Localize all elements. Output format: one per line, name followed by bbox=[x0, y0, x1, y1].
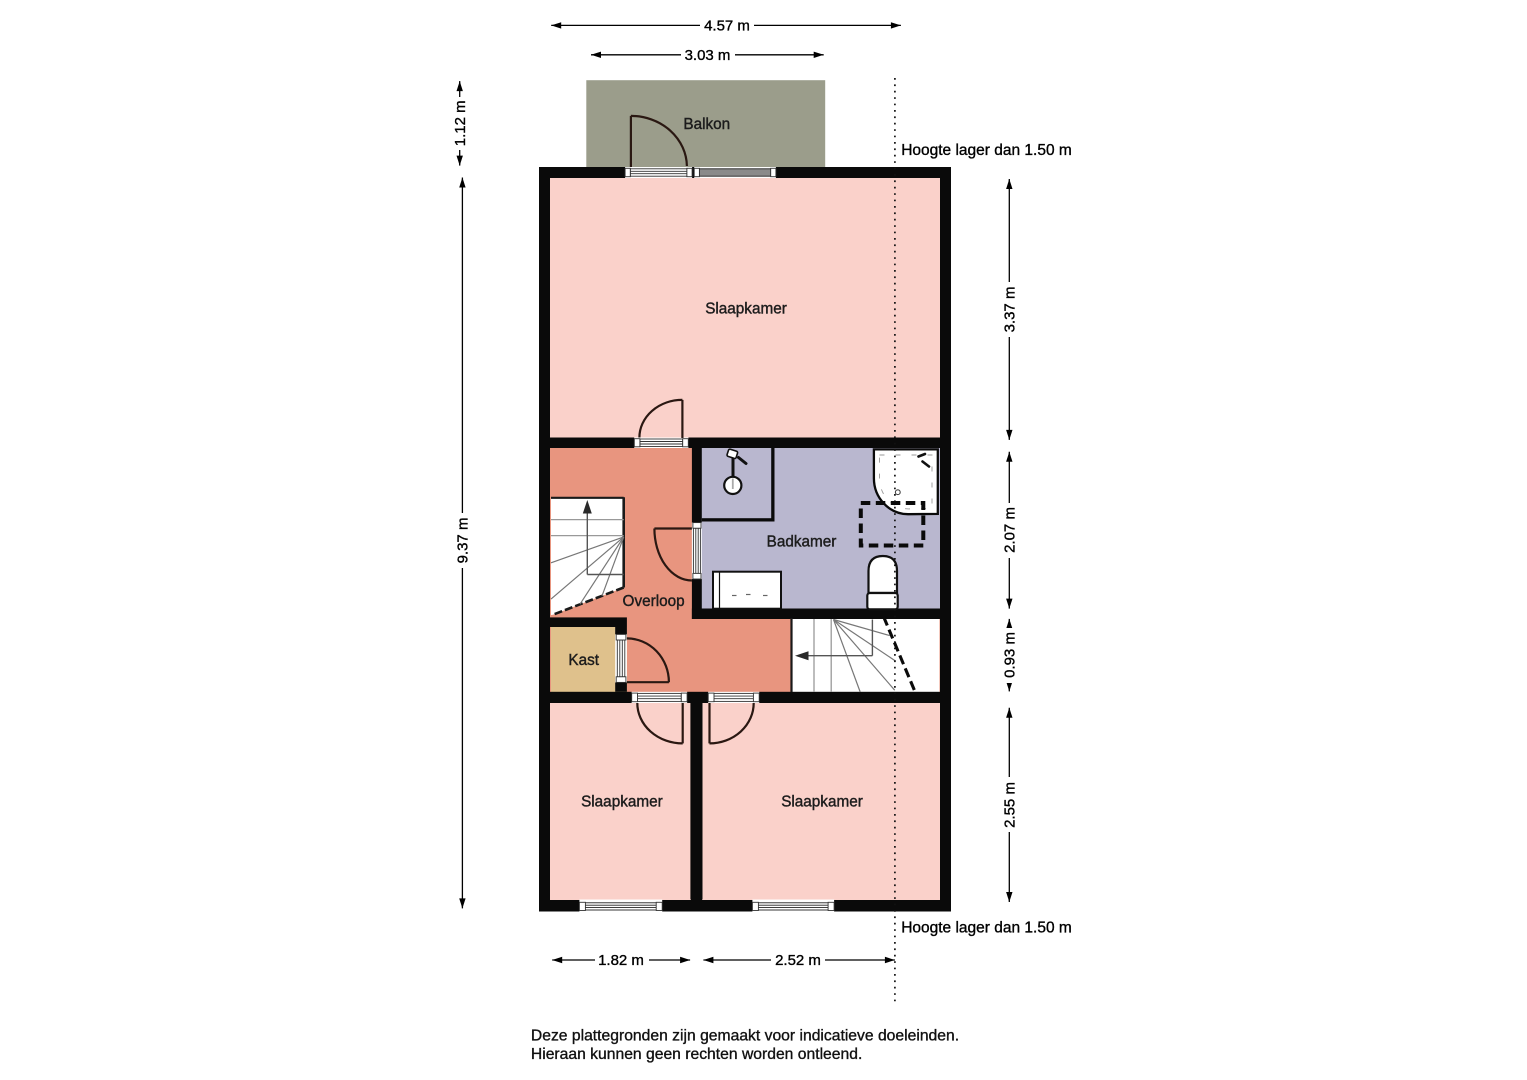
svg-text:1.12 m: 1.12 m bbox=[452, 100, 469, 146]
svg-text:Slaapkamer: Slaapkamer bbox=[705, 301, 787, 318]
svg-text:Deze plattegronden zijn gemaak: Deze plattegronden zijn gemaakt voor ind… bbox=[531, 1028, 959, 1045]
svg-text:Balkon: Balkon bbox=[683, 116, 730, 133]
svg-text:2.52 m: 2.52 m bbox=[775, 952, 821, 969]
svg-text:Slaapkamer: Slaapkamer bbox=[781, 794, 863, 811]
svg-text:2.55 m: 2.55 m bbox=[1001, 782, 1018, 828]
svg-text:Badkamer: Badkamer bbox=[767, 534, 837, 551]
svg-text:Hoogte lager dan 1.50 m: Hoogte lager dan 1.50 m bbox=[901, 142, 1072, 159]
svg-text:2.07 m: 2.07 m bbox=[1001, 507, 1018, 553]
svg-text:9.37 m: 9.37 m bbox=[455, 518, 472, 564]
svg-text:3.37 m: 3.37 m bbox=[1001, 287, 1018, 333]
svg-text:0.93 m: 0.93 m bbox=[1001, 632, 1018, 678]
svg-text:4.57 m: 4.57 m bbox=[704, 18, 750, 35]
svg-text:Hoogte lager dan 1.50 m: Hoogte lager dan 1.50 m bbox=[901, 919, 1072, 936]
svg-text:Overloop: Overloop bbox=[623, 593, 685, 610]
svg-text:Hieraan kunnen geen rechten wo: Hieraan kunnen geen rechten worden ontle… bbox=[531, 1046, 862, 1063]
svg-text:Kast: Kast bbox=[568, 652, 599, 669]
svg-text:1.82 m: 1.82 m bbox=[598, 952, 644, 969]
svg-text:3.03 m: 3.03 m bbox=[685, 47, 731, 64]
svg-text:Slaapkamer: Slaapkamer bbox=[581, 794, 663, 811]
